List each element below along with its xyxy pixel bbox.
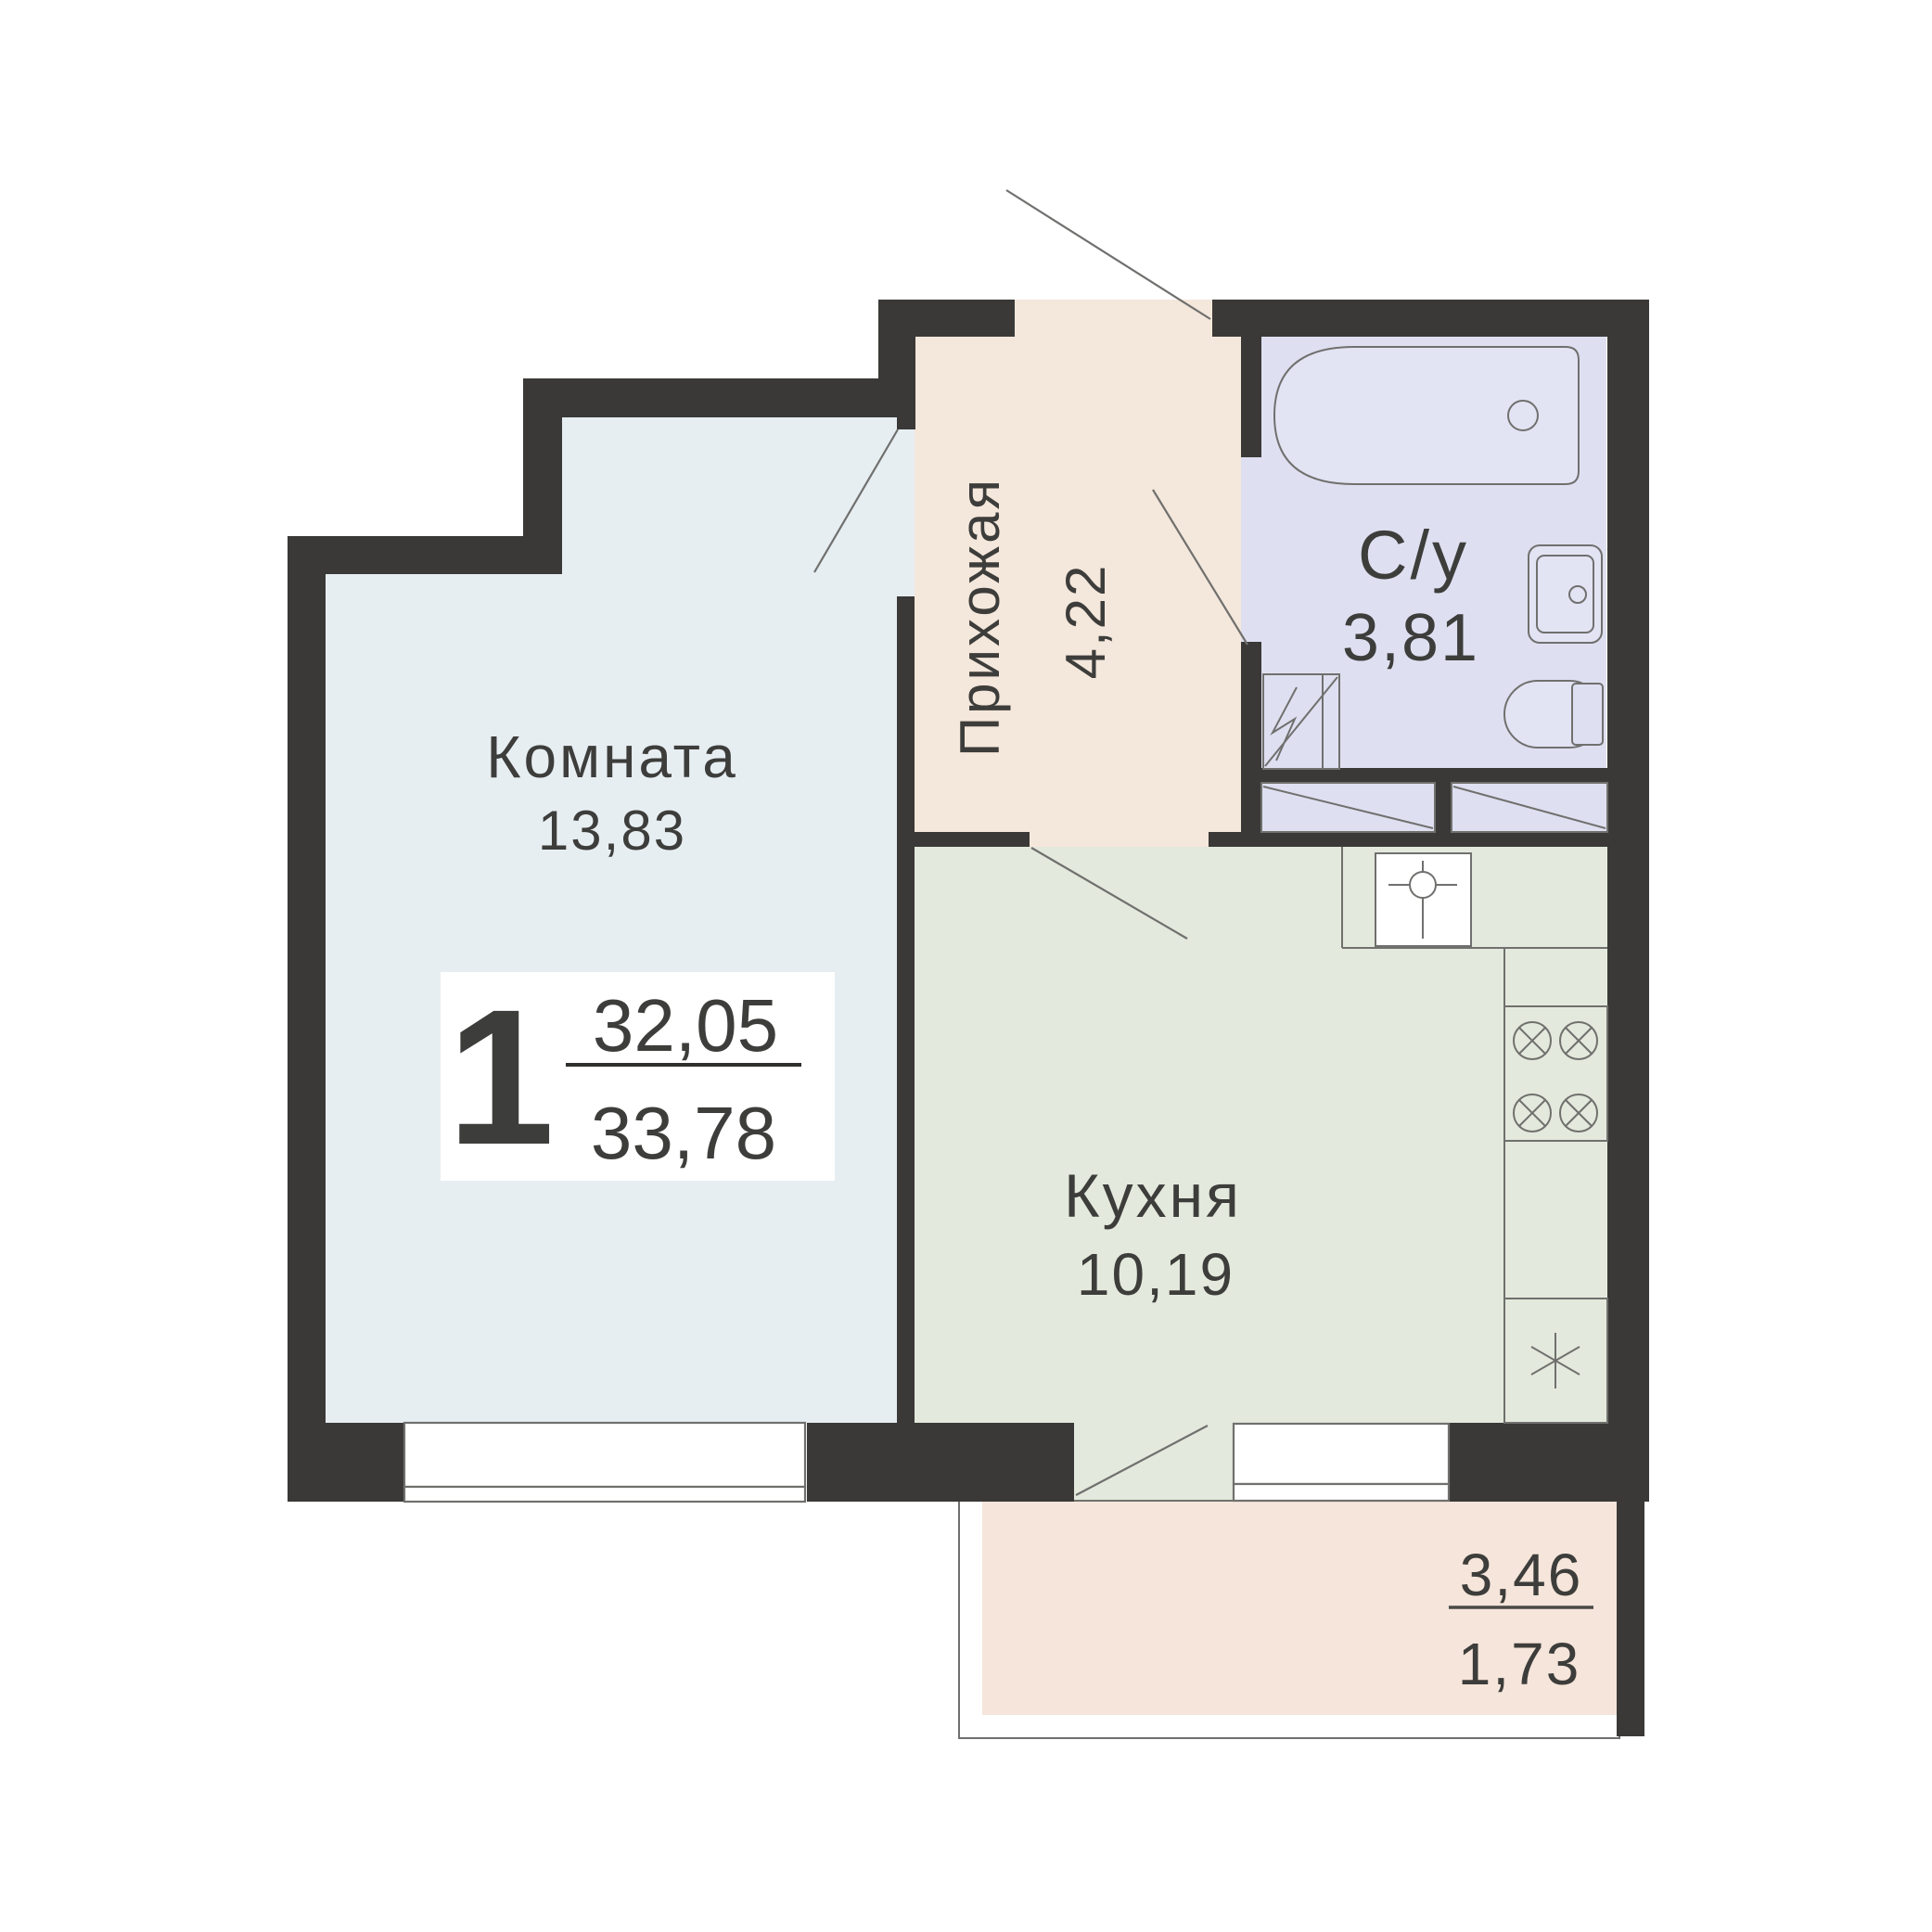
balcony-door-opening <box>1074 1423 1234 1502</box>
toilet-tank-icon <box>1572 684 1603 745</box>
living-room-window-sill <box>404 1487 805 1502</box>
bathroom-door-opening <box>1241 457 1261 642</box>
wall-segment <box>288 536 326 1502</box>
balcony-area-reduced: 1,73 <box>1458 1631 1581 1697</box>
unit-total-area: 33,78 <box>591 1092 776 1174</box>
bathroom-sink-icon <box>1529 545 1602 643</box>
wall-segment <box>1261 832 1607 847</box>
wall-segment <box>288 536 562 574</box>
wall-segment <box>1241 768 1649 783</box>
room-area-hallway: 4,22 <box>1055 564 1117 680</box>
wall-segment <box>1241 337 1261 457</box>
wall-segment <box>807 1423 1074 1502</box>
entry-door-opening <box>1015 300 1212 337</box>
wall-segment <box>1241 642 1261 832</box>
hallway-kitchen-opening <box>1030 832 1209 847</box>
balcony-window-sill <box>1234 1484 1449 1501</box>
wall-segment <box>1607 300 1649 1501</box>
wall-segment <box>897 596 915 1423</box>
wall-segment <box>1212 300 1649 337</box>
wall-segment <box>878 337 915 417</box>
room-name-kitchen: Кухня <box>1064 1161 1242 1230</box>
room-area-bathroom: 3,81 <box>1342 601 1479 675</box>
wall-segment <box>523 378 562 536</box>
balcony-window <box>1234 1424 1449 1484</box>
vent-shafts <box>1261 783 1607 832</box>
room-area-living: 13,83 <box>538 800 686 862</box>
wall-segment <box>1435 783 1452 832</box>
living-room-window <box>404 1423 805 1487</box>
room-area-kitchen: 10,19 <box>1077 1241 1235 1308</box>
kitchen-faucet-icon <box>1410 872 1436 898</box>
floor-plan: Комната 13,83 1 32,05 33,78 Прихожая 4,2… <box>0 0 1932 1932</box>
wall-segment <box>897 417 915 429</box>
wall-segment <box>523 378 878 417</box>
wall-segment <box>1209 832 1261 847</box>
unit-rooms-count: 1 <box>447 970 555 1185</box>
balcony-area-full: 3,46 <box>1460 1542 1583 1608</box>
floor-plan-page: Комната 13,83 1 32,05 33,78 Прихожая 4,2… <box>0 0 1932 1932</box>
unit-living-area: 32,05 <box>593 984 778 1067</box>
bathtub-icon <box>1274 347 1579 484</box>
room-name-hallway: Прихожая <box>949 477 1011 757</box>
wall-segment <box>878 300 1015 337</box>
wall-segment <box>288 1423 404 1502</box>
room-name-bathroom: С/у <box>1358 517 1469 594</box>
room-name-living: Комната <box>486 723 738 790</box>
living-room-door-opening <box>897 429 915 596</box>
wall-segment <box>915 832 1030 847</box>
wall-segment <box>1617 1501 1644 1736</box>
kitchen-floor <box>915 847 1607 1423</box>
